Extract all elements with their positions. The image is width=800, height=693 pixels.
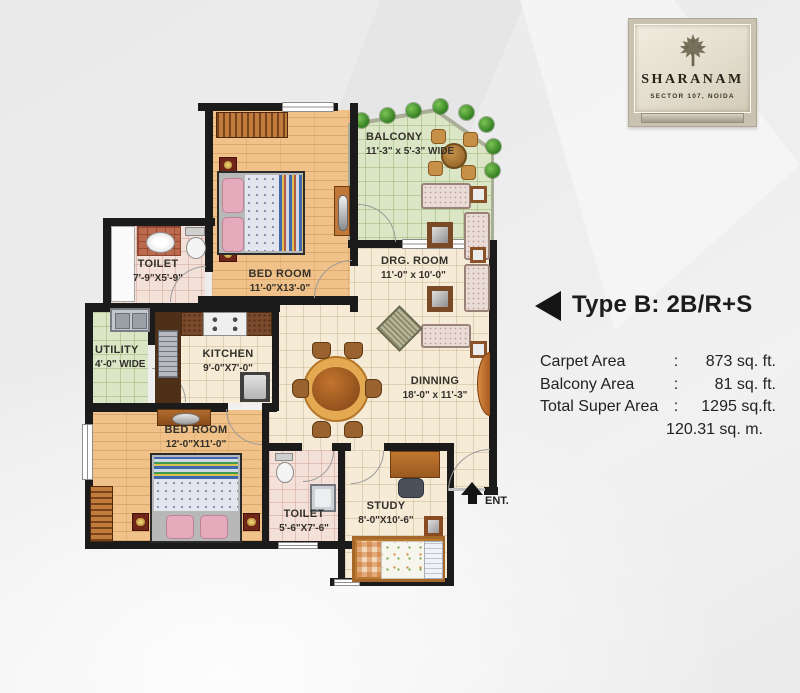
logo-inner-frame: SHARANAM SECTOR 107, NOIDA: [634, 24, 751, 113]
sofa: [464, 264, 490, 312]
wardrobe: [90, 486, 113, 542]
label-study: STUDY8'-0"X10'-6": [350, 500, 422, 527]
washbasin: [146, 232, 175, 253]
toilet-wc: [272, 453, 296, 483]
toilet-wc: [183, 227, 207, 259]
wall: [384, 443, 454, 451]
entrance-label: ENT.: [485, 495, 509, 507]
refrigerator: [240, 372, 270, 402]
wall: [103, 218, 111, 312]
wall: [489, 243, 497, 495]
plant-icon: [459, 105, 474, 120]
sofa: [421, 324, 471, 348]
area-metric: 120.31 sq. m.: [540, 419, 776, 442]
label-dinning: DINNING18'-0" x 11'-3": [394, 375, 476, 402]
plant-icon: [433, 99, 448, 114]
pillow: [200, 515, 228, 539]
side-table: [470, 186, 487, 203]
label-balcony: BALCONY11'-3" x 5'-3" WIDE: [366, 131, 484, 158]
plant-icon: [486, 139, 501, 154]
dining-chair: [292, 379, 309, 398]
dining-chair: [312, 421, 331, 438]
duvet: [381, 541, 425, 579]
blanket: [279, 175, 303, 251]
patio-chair: [428, 161, 443, 176]
patio-chair: [461, 165, 476, 180]
double-bed: [150, 453, 242, 543]
label-utility: UTILITY4'-0" WIDE: [95, 344, 157, 371]
label-toilet-top: TOILET7'-9"X5'-9": [116, 258, 200, 285]
wall: [103, 218, 215, 226]
plant-icon: [380, 108, 395, 123]
logo-subtitle: SECTOR 107, NOIDA: [635, 93, 750, 100]
double-bed: [217, 171, 305, 255]
area-row: Balcony Area : 81 sq. ft.: [540, 374, 776, 397]
single-bed: [352, 536, 445, 582]
area-table: Carpet Area : 873 sq. ft. Balcony Area :…: [540, 351, 776, 441]
wall: [350, 103, 358, 266]
plant-icon: [485, 163, 500, 178]
wall: [272, 303, 279, 411]
logo-title: SHARANAM: [635, 72, 750, 88]
blanket: [154, 457, 238, 479]
wall: [205, 300, 213, 312]
label-toilet-bottom: TOILET5'-6"X7'-6": [271, 508, 337, 535]
area-row: Carpet Area : 873 sq. ft.: [540, 351, 776, 374]
coffee-table: [427, 222, 453, 248]
window: [82, 424, 93, 480]
desk: [390, 451, 440, 478]
wardrobe: [216, 112, 288, 138]
plant-icon: [479, 117, 494, 132]
dining-chair: [365, 379, 382, 398]
plant-icon: [406, 103, 421, 118]
duvet: [154, 479, 238, 511]
page: ENT. BALCONY11'-3" x 5'-3" WIDE BED ROOM…: [0, 0, 800, 693]
utility-sink: [110, 308, 150, 332]
mirror: [338, 195, 348, 231]
pillow: [222, 217, 244, 252]
shelf-cube: [424, 516, 443, 537]
dining-chair: [344, 342, 363, 359]
logo-plaque: SHARANAM SECTOR 107, NOIDA: [628, 18, 757, 127]
stove: [203, 312, 247, 336]
label-bedroom-bottom: BED ROOM12'-0"X11'-0": [150, 424, 242, 451]
label-bedroom-top: BED ROOM11'-0"X13'-0": [224, 268, 336, 295]
dining-table: [303, 356, 369, 422]
duvet: [245, 175, 279, 251]
kitchen-sink: [158, 330, 178, 378]
pillow: [166, 515, 194, 539]
dining-chair: [312, 342, 331, 359]
nightstand: [243, 513, 260, 531]
window: [282, 102, 334, 112]
tree-icon: [635, 31, 750, 74]
desk-chair: [398, 478, 424, 498]
wall: [350, 296, 358, 312]
wardrobe: [334, 186, 350, 236]
wall: [338, 443, 345, 586]
area-row: Total Super Area : 1295 sq.ft.: [540, 396, 776, 419]
washbasin-counter: [137, 226, 181, 256]
nightstand: [132, 513, 149, 531]
window: [278, 542, 318, 549]
label-drg-room: DRG. ROOM11'-0" x 10'-0": [381, 255, 467, 282]
blanket: [357, 541, 381, 577]
label-kitchen: KITCHEN9'-0"X7'-0": [190, 348, 266, 375]
coffee-table: [427, 286, 453, 312]
sofa: [421, 183, 471, 209]
side-table: [470, 247, 486, 263]
wall: [262, 403, 269, 549]
pillow: [222, 178, 244, 213]
entrance-arrow-icon: [468, 494, 477, 504]
pillow: [424, 541, 443, 579]
unit-type-label: Type B: 2B/R+S: [572, 291, 752, 319]
type-arrow-icon: [535, 291, 561, 321]
dining-chair: [344, 421, 363, 438]
logo-base-strip: [641, 113, 744, 123]
